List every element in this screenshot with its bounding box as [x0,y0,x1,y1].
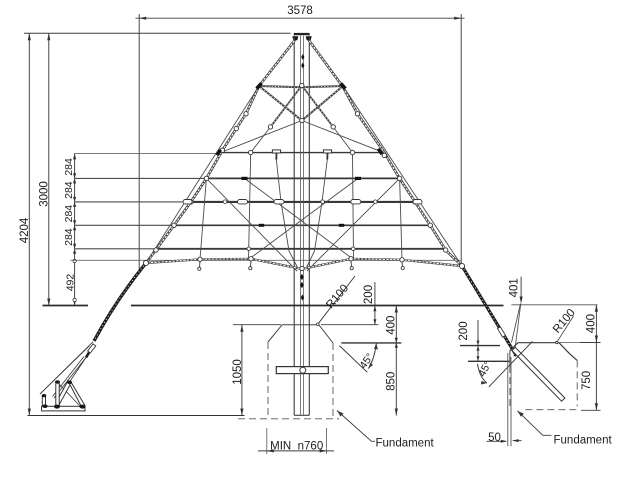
svg-text:Fundament: Fundament [554,434,613,446]
svg-text:284: 284 [63,181,75,199]
svg-text:Fundament: Fundament [376,438,435,450]
svg-text:4204: 4204 [19,217,31,243]
svg-text:750: 750 [581,371,593,390]
svg-text:401: 401 [508,278,520,297]
svg-text:284: 284 [63,228,75,246]
svg-text:50: 50 [488,432,501,444]
svg-text:850: 850 [386,372,398,391]
svg-text:400: 400 [585,314,597,333]
svg-text:284: 284 [63,205,75,223]
svg-text:200: 200 [363,285,375,304]
svg-text:400: 400 [385,316,397,335]
svg-text:492: 492 [65,274,77,292]
svg-text:3000: 3000 [39,181,51,207]
svg-text:200: 200 [458,321,470,340]
svg-text:1050: 1050 [232,359,244,385]
svg-text:MIN n760: MIN n760 [270,440,323,452]
svg-text:3578: 3578 [287,5,313,17]
svg-text:284: 284 [63,158,75,176]
